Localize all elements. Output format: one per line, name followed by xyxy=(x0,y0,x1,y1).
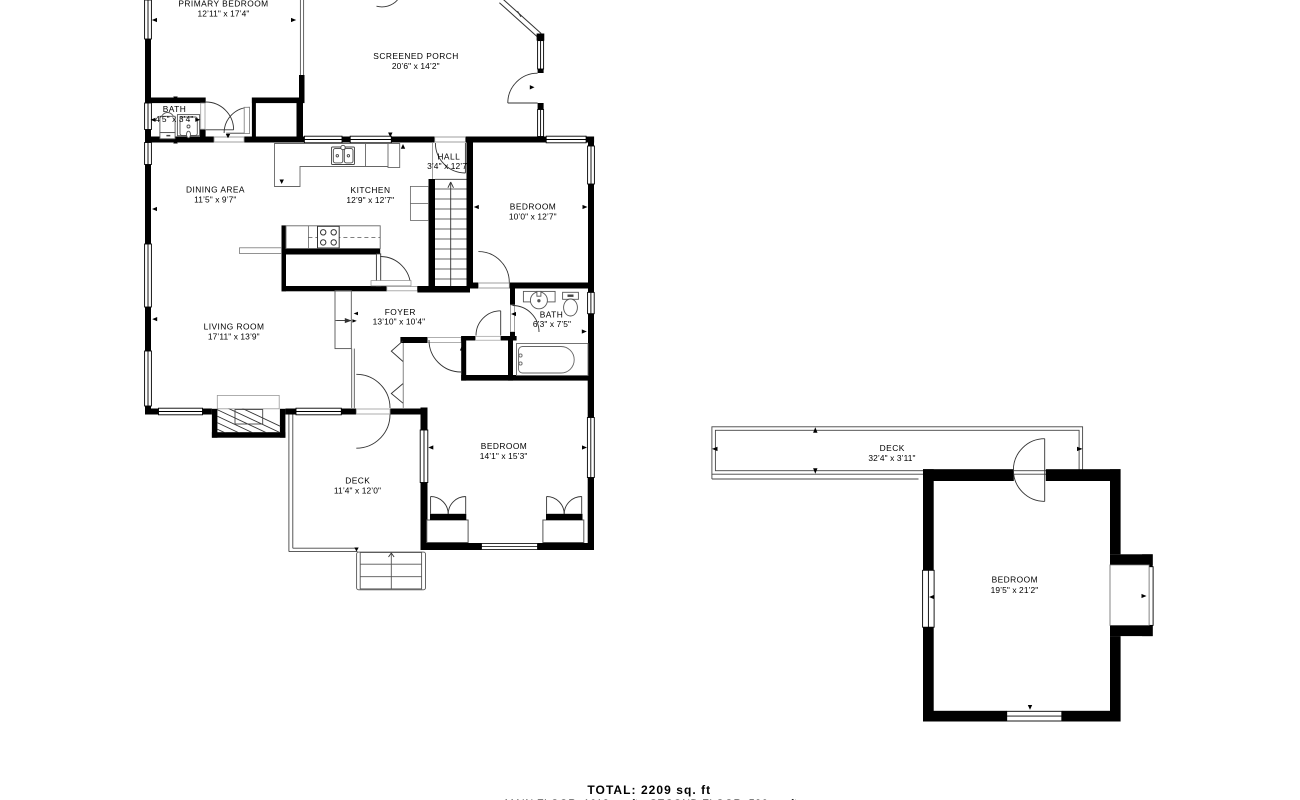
svg-text:DINING AREA: DINING AREA xyxy=(186,184,245,194)
svg-text:14’1" x 15’3": 14’1" x 15’3" xyxy=(480,451,528,461)
svg-text:KITCHEN: KITCHEN xyxy=(351,185,391,195)
svg-text:20’6" x 14’2": 20’6" x 14’2" xyxy=(392,61,440,71)
svg-text:12’9" x 12’7": 12’9" x 12’7" xyxy=(346,195,394,205)
svg-text:BATH: BATH xyxy=(540,309,564,319)
svg-text:HALL: HALL xyxy=(437,151,460,161)
svg-text:11’5" x 9’7": 11’5" x 9’7" xyxy=(194,194,236,204)
svg-text:3’4" x 12’7": 3’4" x 12’7" xyxy=(427,161,470,171)
svg-text:BEDROOM: BEDROOM xyxy=(992,575,1038,585)
svg-text:6’3" x 7’5": 6’3" x 7’5" xyxy=(533,319,571,329)
svg-text:DECK: DECK xyxy=(880,443,905,453)
svg-text:12’11" x 17’4": 12’11" x 17’4" xyxy=(198,8,250,18)
svg-text:13’10" x 10’4": 13’10" x 10’4" xyxy=(373,317,426,327)
svg-text:10’0" x 12’7": 10’0" x 12’7" xyxy=(509,211,557,221)
svg-text:LIVING ROOM: LIVING ROOM xyxy=(204,321,265,331)
svg-text:BATH: BATH xyxy=(163,104,187,114)
svg-text:FOYER: FOYER xyxy=(385,307,416,317)
svg-text:SCREENED PORCH: SCREENED PORCH xyxy=(373,51,458,61)
svg-text:BEDROOM: BEDROOM xyxy=(510,201,556,211)
svg-text:17’11" x 13’9": 17’11" x 13’9" xyxy=(208,331,260,341)
svg-text:19’5" x 21’2": 19’5" x 21’2" xyxy=(991,585,1039,595)
svg-text:BEDROOM: BEDROOM xyxy=(481,441,527,451)
svg-text:TOTAL: 2209 sq. ft: TOTAL: 2209 sq. ft xyxy=(587,783,711,797)
svg-text:DECK: DECK xyxy=(345,476,370,486)
svg-text:32’4" x 3’11": 32’4" x 3’11" xyxy=(868,453,915,463)
svg-text:4’5" x 3’4": 4’5" x 3’4" xyxy=(155,114,193,124)
svg-text:11’4" x 12’0": 11’4" x 12’0" xyxy=(334,486,381,496)
svg-text:PRIMARY BEDROOM: PRIMARY BEDROOM xyxy=(178,0,268,8)
